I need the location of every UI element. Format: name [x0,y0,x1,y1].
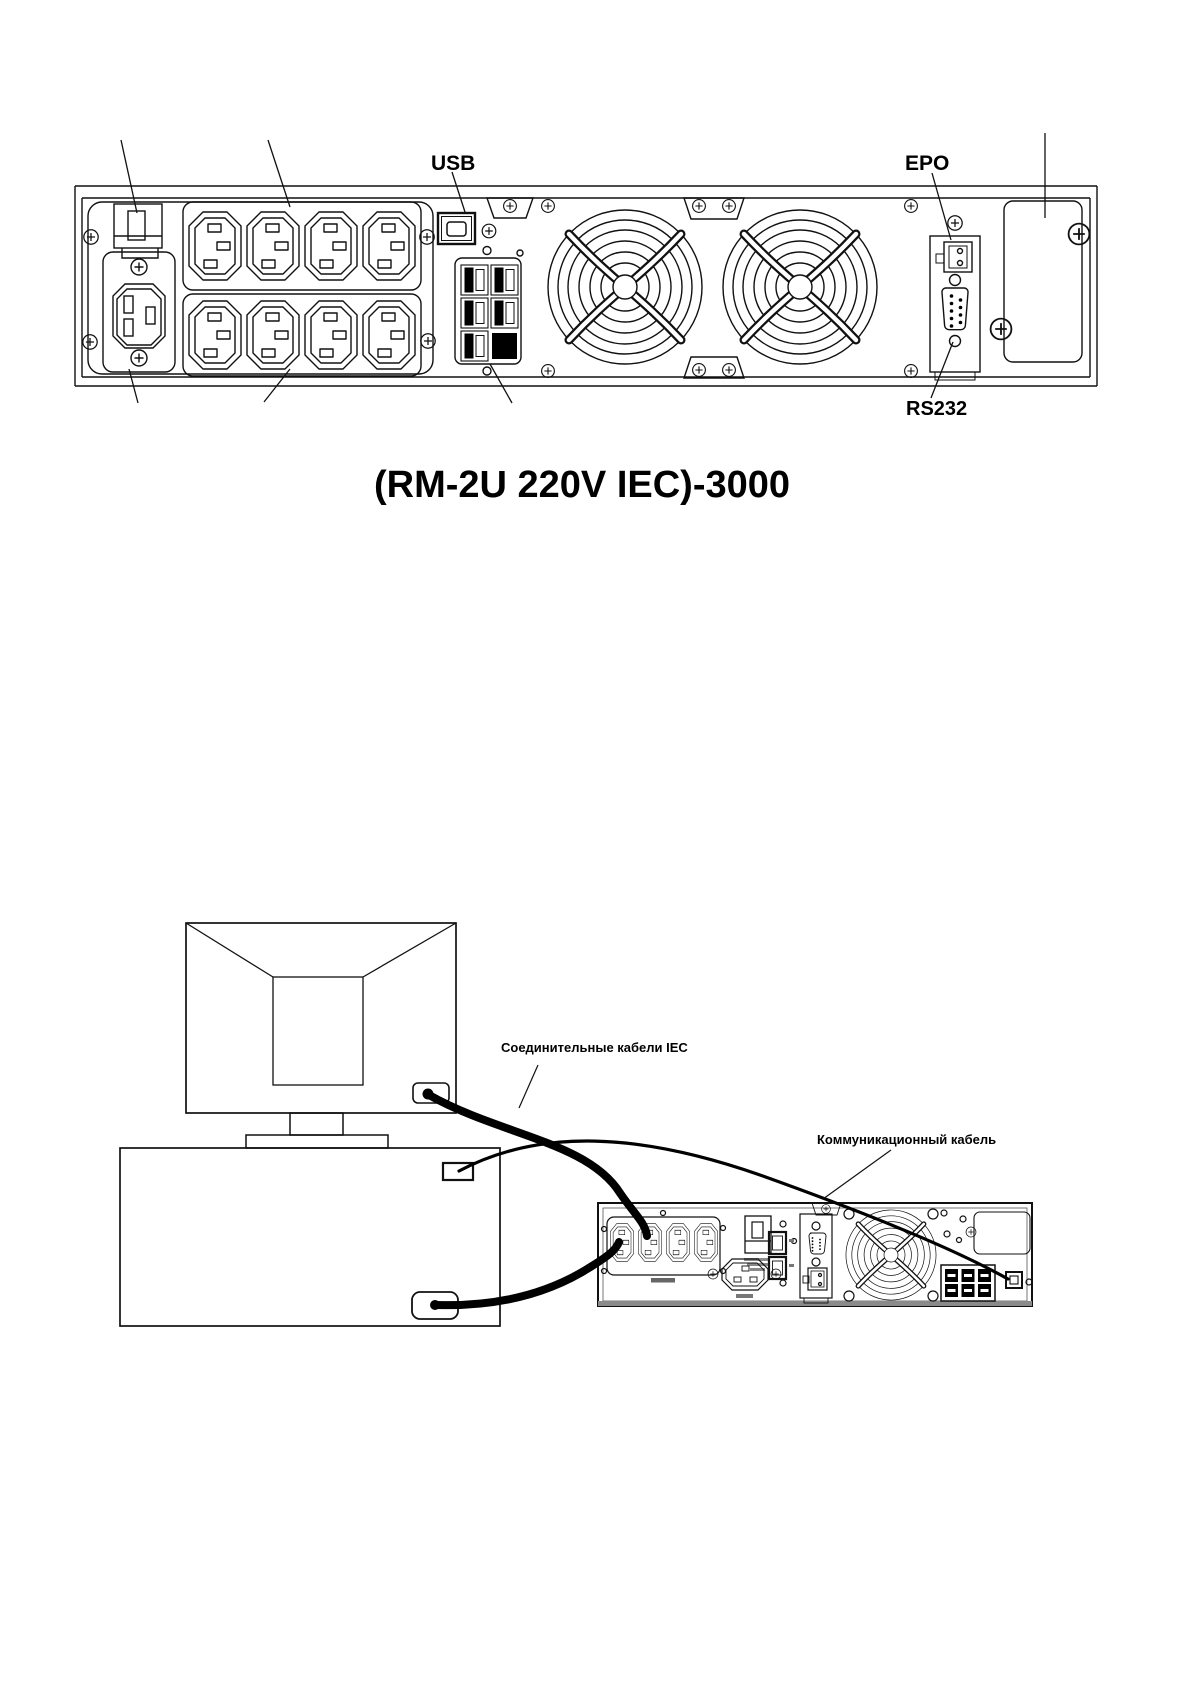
communication-cable-label: Коммуникационный кабель [817,1132,996,1147]
monitor-power-cable [429,1095,647,1236]
ups-2u-rear-panel: USB EPO RS232 [75,133,1097,420]
small-ups-rear-panel [598,1203,1032,1306]
panel-screws [83,200,962,378]
connection-diagram: Соединительные кабели IEC Коммуникационн… [120,923,1032,1326]
pc-case [120,1148,500,1326]
circuit-breaker [114,204,162,258]
iec-outlet-bank-bottom [183,294,421,376]
usb-label: USB [431,152,475,175]
terminal-block [455,247,523,376]
small-ups-fan [844,1209,938,1301]
expansion-slot [991,201,1090,362]
small-ups-serial-epo-module [800,1214,832,1303]
small-ups-expansion-slot [974,1212,1030,1254]
diagram-canvas: USB EPO RS232 (RM-2U 220V IEC)-3000 [0,0,1191,1684]
small-ups-breaker [744,1216,797,1286]
epo-rs232-module [930,236,980,380]
epo-connector [936,242,972,272]
c19-inlet [103,252,175,372]
model-title: (RM-2U 220V IEC)-3000 [374,464,790,506]
monitor-stand-neck [290,1113,343,1135]
small-ups-terminal-block [941,1210,995,1301]
small-ups-rj45-ports [769,1232,794,1279]
cooling-fan-right [723,210,877,364]
rs232-label: RS232 [906,398,967,420]
communication-cable [459,1141,1008,1279]
usb-port [438,213,475,244]
pc-power-cable [437,1242,619,1305]
iec-outlet-bank-top [183,202,421,290]
manual-page: USB EPO RS232 (RM-2U 220V IEC)-3000 [0,0,1191,1684]
monitor-stand-base [246,1135,388,1148]
cooling-fan-left [548,210,702,364]
rs232-port [942,275,968,347]
epo-label: EPO [905,152,949,175]
iec-cables-label: Соединительные кабели IEC [501,1040,688,1055]
monitor [186,923,456,1148]
